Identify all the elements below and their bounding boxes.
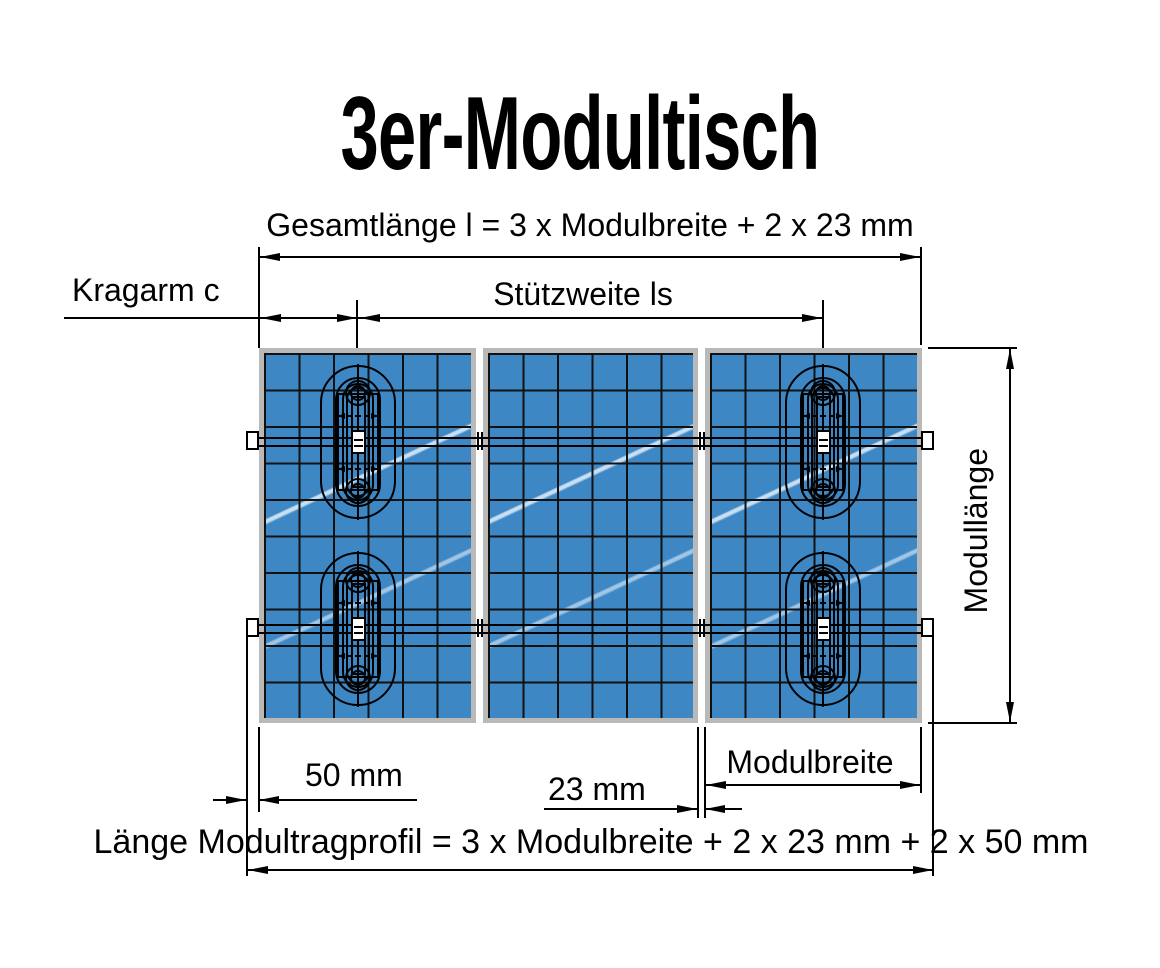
gesamtlaenge-dimension-line [259,256,921,258]
arrowhead-up-icon [1006,349,1014,369]
extension-line-module-left [258,247,260,348]
rail-joiner-bar [699,432,701,450]
modullaenge-label: Modullänge [958,448,995,613]
module-clamp [318,549,398,709]
arrowhead-right-icon [900,781,920,789]
rail-end-cap [246,618,259,637]
module-gap-label: 23 mm [548,771,646,808]
kragarm-stuetzweite-dimension-line [64,317,823,319]
rail-end-cap [921,431,934,450]
module-clamp [783,549,863,709]
rail-joiner-bar [703,619,705,637]
rail-joiner-bar [481,432,483,450]
pv-module-2 [483,348,698,723]
kragarm-label: Kragarm c [72,272,220,309]
clamp-rail-connector [351,617,366,641]
rail-joiner-bar [477,432,479,450]
module-clamp [783,362,863,522]
arrowhead-left-icon [705,805,725,813]
page-title: 3er-Modultisch [197,82,963,186]
arrowhead-right-icon [226,796,246,804]
rail-joiner-bar [703,432,705,450]
rail-joiner-bar [699,619,701,637]
arrowhead-left-icon [360,314,380,322]
overhang-leader-right [259,799,417,801]
gap-leader-left [544,808,697,810]
modullaenge-dimension-line [1009,348,1011,723]
modullaenge-extension-top [928,347,1017,349]
rail-joiner-bar [477,619,479,637]
arrowhead-right-icon [337,314,357,322]
tragprofil-dimension-line [247,869,934,871]
rail-end-cap [246,431,259,450]
rail-overhang-label: 50 mm [305,757,403,794]
arrowhead-right-icon [802,314,822,322]
arrowhead-right-icon [900,253,920,261]
clamp-rail-connector [816,430,831,454]
arrowhead-left-icon [261,314,281,322]
arrowhead-right-icon [913,866,933,874]
gesamtlaenge-label: Gesamtlänge l = 3 x Modulbreite + 2 x 23… [160,207,1020,244]
pv-module-2-cells [488,353,693,718]
clamp-rail-connector [351,430,366,454]
arrowhead-left-icon [706,781,726,789]
extension-line-module-right [920,247,922,345]
tragprofil-label: Länge Modultragprofil = 3 x Modulbreite … [60,823,1122,862]
module-clamp [318,362,398,522]
module2-right-edge-extension [697,727,699,818]
modullaenge-extension-bottom [928,722,1017,724]
clamp-rail-connector [816,617,831,641]
rail-joiner-bar [481,619,483,637]
modulbreite-label: Modulbreite [715,744,905,781]
diagram-canvas: 3er-Modultisch Gesamtlänge l = 3 x Modul… [0,0,1160,968]
arrowhead-left-icon [248,866,268,874]
modulbreite-dimension-line [705,784,921,786]
stuetzweite-label: Stützweite ls [400,276,766,313]
arrowhead-down-icon [1006,702,1014,722]
rail-end-cap [921,618,934,637]
arrowhead-right-icon [677,805,697,813]
arrowhead-left-icon [259,796,279,804]
arrowhead-left-icon [260,253,280,261]
